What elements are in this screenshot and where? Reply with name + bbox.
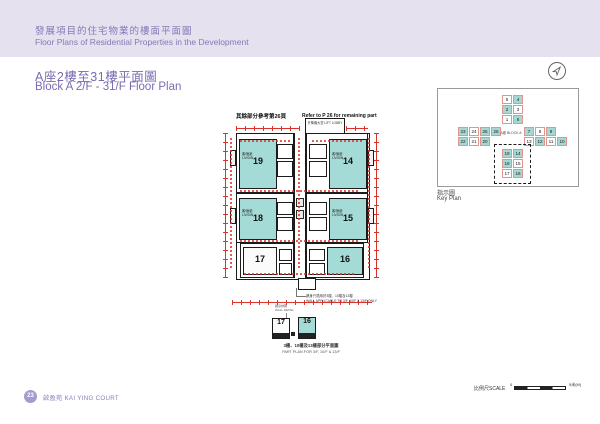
dimension-text-marks (230, 138, 232, 268)
main-floor-plan: 其餘部分參考第26頁 Refer to P 26 for remaining p… (222, 110, 380, 322)
key-plan-box: 5 4 2 3 1 6 23 24 25 26 22 21 20 7 8 9 1… (437, 88, 579, 187)
ref-note-zh: 其餘部分參考第26頁 (236, 112, 286, 120)
unit-14-living: 客/飯廳 LIV/DIN 14 (329, 139, 367, 189)
key-plan-block-label: A座 BLOCK A (494, 131, 528, 135)
dimension-line-right (374, 133, 379, 278)
unit-15-living: 客/飯廳 LIV/DIN 15 (329, 198, 367, 240)
unit-number: 14 (330, 156, 366, 166)
dimension-text-marks (312, 140, 362, 142)
unit-18-kitchen (277, 217, 293, 231)
dimension-text-marks (240, 240, 360, 242)
inset-wall-strip (273, 333, 289, 338)
unit-number: 16 (328, 254, 362, 264)
unit-14-flat: 客/飯廳 LIV/DIN 14 (306, 133, 368, 193)
header-band: 發展項目的住宅物業的樓面平面圖 Floor Plans of Residenti… (0, 0, 600, 57)
scale-end: 5米(M) (569, 383, 581, 388)
unit-19-bath (277, 144, 293, 159)
dimension-text-marks (298, 138, 300, 268)
key-unit: 2 (502, 105, 512, 114)
key-unit: 5 (502, 95, 512, 104)
scale-label: 比例尺SCALE (474, 385, 505, 392)
part-plan-inset: 牆身詳圖 WALL DETAIL 17 16 3樓、10樓及13樓部分平面圖 P… (256, 304, 366, 360)
key-plan-highlight-rect (494, 144, 531, 184)
inset-unit-17-number: 17 (277, 319, 285, 326)
inset-note-en: WALL DETAIL (275, 309, 294, 313)
scale-start: 0 (510, 382, 512, 387)
key-unit: 11 (546, 137, 556, 146)
inset-caption-en: PART PLAN FOR 3/F, 10/F & 13/F (256, 350, 366, 354)
unit-14-kitchen (309, 161, 327, 177)
unit-15-kitchen (309, 217, 327, 231)
inset-unit-16-number: 16 (303, 318, 311, 325)
inset-caption-zh: 3樓、10樓及13樓部分平面圖 (256, 343, 366, 349)
key-plan-label-en: Key Plan (437, 196, 461, 202)
band-title-en: Floor Plans of Residential Properties in… (35, 37, 249, 47)
unit-number: 15 (330, 213, 366, 223)
key-unit: 25 (480, 127, 490, 136)
key-unit: 10 (557, 137, 567, 146)
unit-19-living: 客/飯廳 LIV/DIN 19 (239, 139, 277, 189)
footer-development-name: 啟盈苑 KAI YING COURT (43, 393, 119, 402)
lift-lobby: 升降機大堂 LIFT LOBBY (305, 118, 345, 134)
key-unit: 3 (513, 105, 523, 114)
dimension-line-top (346, 126, 368, 131)
inset-wall-strip (299, 333, 315, 338)
unit-16-bath (309, 249, 325, 261)
unit-18-living: 客/飯廳 LIV/DIN 18 (239, 198, 277, 240)
plan-footnote: 牆身只適用於3樓、10樓及13樓 WALL APPLICABLE TO 3/F,… (306, 294, 377, 304)
page-number-badge: 23 (24, 390, 37, 403)
plan-footnote-en: WALL APPLICABLE TO 3/F, 10/F & 13/F ONLY (306, 299, 377, 304)
unit-17-bath (279, 249, 292, 261)
unit-19-flat: 客/飯廳 LIV/DIN 19 (236, 133, 294, 193)
unit-number: 18 (240, 213, 276, 223)
dimension-line-top (236, 126, 300, 131)
dimension-line-left (223, 133, 228, 278)
unit-14-bath (309, 144, 327, 159)
key-unit: 8 (535, 127, 545, 136)
key-unit: 6 (513, 115, 523, 124)
unit-19-kitchen (277, 161, 293, 177)
brochure-page: 發展項目的住宅物業的樓面平面圖 Floor Plans of Residenti… (0, 0, 600, 424)
key-unit: 9 (546, 127, 556, 136)
key-unit: 4 (513, 95, 523, 104)
unit-17-living: 17 (243, 247, 277, 275)
key-unit: 20 (480, 137, 490, 146)
key-unit: 12 (535, 137, 545, 146)
unit-number: 19 (240, 156, 276, 166)
unit-16-living: 16 (327, 247, 363, 275)
inset-note: 牆身詳圖 WALL DETAIL (275, 305, 294, 313)
scale-bar: 比例尺SCALE 0 5米(M) (474, 382, 584, 396)
unit-18-flat: 客/飯廳 LIV/DIN 18 (236, 193, 294, 243)
unit-number: 17 (244, 254, 276, 264)
inset-unit-16: 16 (298, 317, 316, 339)
inset-corridor-dot (291, 332, 295, 336)
dimension-text-marks (244, 273, 354, 275)
dimension-text-marks (368, 138, 370, 268)
unit-18-bath (277, 202, 293, 215)
key-unit: 1 (502, 115, 512, 124)
section-title-en: Block A 2/F - 31/F Floor Plan (35, 81, 181, 93)
unit-15-flat: 客/飯廳 LIV/DIN 15 (306, 193, 368, 243)
footnote-leader-line (296, 288, 306, 297)
band-title-zh: 發展項目的住宅物業的樓面平面圖 (35, 23, 193, 37)
key-unit: 24 (469, 127, 479, 136)
key-unit: 23 (458, 127, 468, 136)
scale-bar-graphic (514, 386, 566, 390)
dimension-text-marks (240, 190, 360, 192)
key-unit: 21 (469, 137, 479, 146)
north-arrow-icon (548, 62, 566, 80)
unit-15-bath (309, 202, 327, 215)
key-unit: 22 (458, 137, 468, 146)
dimension-text-marks (240, 140, 290, 142)
inset-unit-17: 17 (272, 318, 290, 339)
